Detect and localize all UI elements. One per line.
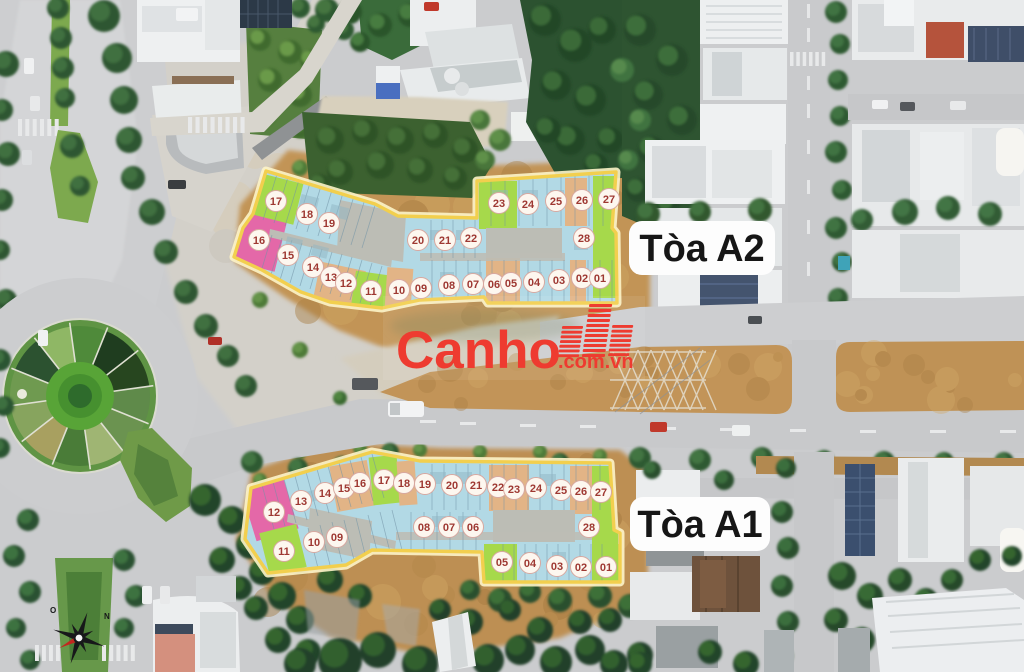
svg-text:16: 16 [354,478,366,490]
svg-text:11: 11 [278,546,290,558]
svg-text:08: 08 [418,522,430,534]
svg-text:10: 10 [393,285,405,297]
svg-text:09: 09 [331,532,343,544]
svg-text:06: 06 [467,522,479,534]
svg-text:Tòa A2: Tòa A2 [639,228,764,270]
svg-text:04: 04 [528,277,541,289]
svg-text:05: 05 [496,557,508,569]
svg-text:26: 26 [575,486,587,498]
svg-text:22: 22 [465,233,477,245]
svg-text:17: 17 [378,475,390,487]
svg-text:09: 09 [415,283,427,295]
svg-text:07: 07 [467,279,479,291]
svg-text:25: 25 [555,485,567,497]
svg-text:21: 21 [439,235,451,247]
svg-text:14: 14 [307,262,320,274]
svg-text:N: N [104,612,110,621]
svg-text:13: 13 [295,496,307,508]
svg-text:11: 11 [365,286,377,298]
svg-text:16: 16 [253,235,265,247]
svg-text:18: 18 [398,478,410,490]
svg-text:15: 15 [282,250,294,262]
svg-text:22: 22 [492,482,504,494]
svg-text:26: 26 [576,195,588,207]
svg-text:15: 15 [338,483,350,495]
svg-text:28: 28 [578,233,590,245]
svg-text:24: 24 [522,199,535,211]
svg-text:06: 06 [488,279,500,291]
svg-text:04: 04 [524,558,537,570]
svg-text:Tòa A1: Tòa A1 [637,504,762,546]
svg-text:02: 02 [576,273,588,285]
svg-text:24: 24 [530,483,543,495]
svg-text:27: 27 [603,194,615,206]
svg-text:08: 08 [443,280,455,292]
svg-text:05: 05 [505,278,517,290]
svg-text:01: 01 [594,273,606,285]
svg-text:12: 12 [268,507,280,519]
svg-text:14: 14 [319,488,332,500]
svg-text:03: 03 [553,275,565,287]
svg-text:01: 01 [600,562,612,574]
svg-text:03: 03 [551,561,563,573]
svg-text:23: 23 [493,198,505,210]
svg-text:19: 19 [323,218,335,230]
svg-text:02: 02 [575,562,587,574]
svg-text:10: 10 [308,537,320,549]
svg-text:O: O [50,606,56,615]
svg-text:19: 19 [419,479,431,491]
svg-text:12: 12 [340,278,352,290]
svg-text:20: 20 [446,480,458,492]
svg-text:17: 17 [270,196,282,208]
svg-text:23: 23 [508,484,520,496]
svg-text:25: 25 [550,196,562,208]
svg-text:Canho: Canho [396,321,561,380]
svg-text:28: 28 [583,522,595,534]
svg-text:21: 21 [470,480,482,492]
svg-text:27: 27 [595,487,607,499]
svg-text:20: 20 [412,235,424,247]
svg-text:18: 18 [301,209,313,221]
svg-text:07: 07 [443,522,455,534]
